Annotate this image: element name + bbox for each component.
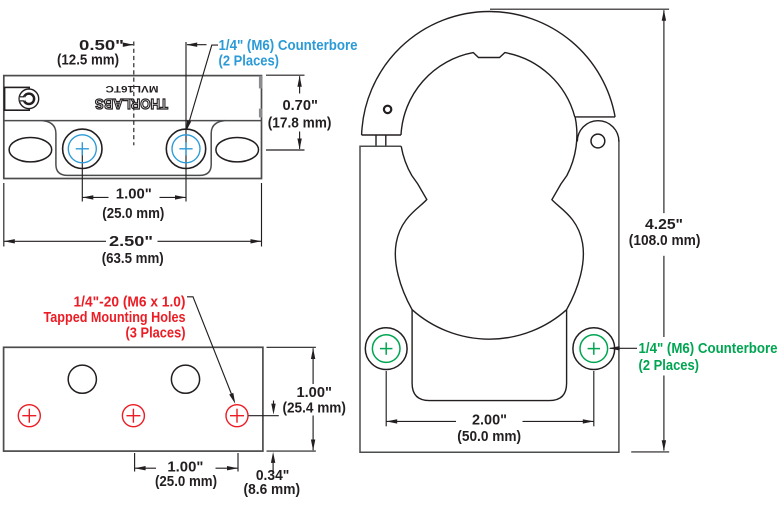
svg-text:1/4" (M6) Counterbore: 1/4" (M6) Counterbore	[219, 37, 358, 54]
svg-text:2.00": 2.00"	[472, 412, 507, 429]
svg-text:(25.0 mm): (25.0 mm)	[102, 205, 164, 222]
svg-text:(2 Places): (2 Places)	[219, 53, 280, 70]
svg-text:(108.0 mm): (108.0 mm)	[629, 232, 701, 249]
svg-text:(50.0 mm): (50.0 mm)	[457, 428, 521, 445]
svg-text:Tapped Mounting Holes: Tapped Mounting Holes	[44, 309, 186, 326]
svg-text:THORLABS: THORLABS	[95, 95, 168, 112]
svg-text:MVL16TC: MVL16TC	[105, 83, 158, 94]
svg-text:1/4" (M6) Counterbore: 1/4" (M6) Counterbore	[639, 340, 778, 357]
svg-text:(25.0 mm): (25.0 mm)	[155, 473, 217, 490]
svg-text:(8.6 mm): (8.6 mm)	[244, 481, 301, 498]
svg-text:1.00": 1.00"	[116, 186, 152, 203]
svg-text:(12.5 mm): (12.5 mm)	[57, 52, 119, 69]
svg-text:(2 Places): (2 Places)	[639, 357, 700, 374]
svg-text:2.50": 2.50"	[109, 233, 153, 250]
svg-text:4.25": 4.25"	[645, 216, 683, 233]
svg-text:(3 Places): (3 Places)	[126, 325, 186, 342]
svg-text:(63.5 mm): (63.5 mm)	[102, 250, 164, 267]
svg-text:(25.4 mm): (25.4 mm)	[282, 400, 346, 417]
svg-text:0.70": 0.70"	[282, 97, 318, 114]
svg-text:(17.8 mm): (17.8 mm)	[268, 115, 332, 132]
